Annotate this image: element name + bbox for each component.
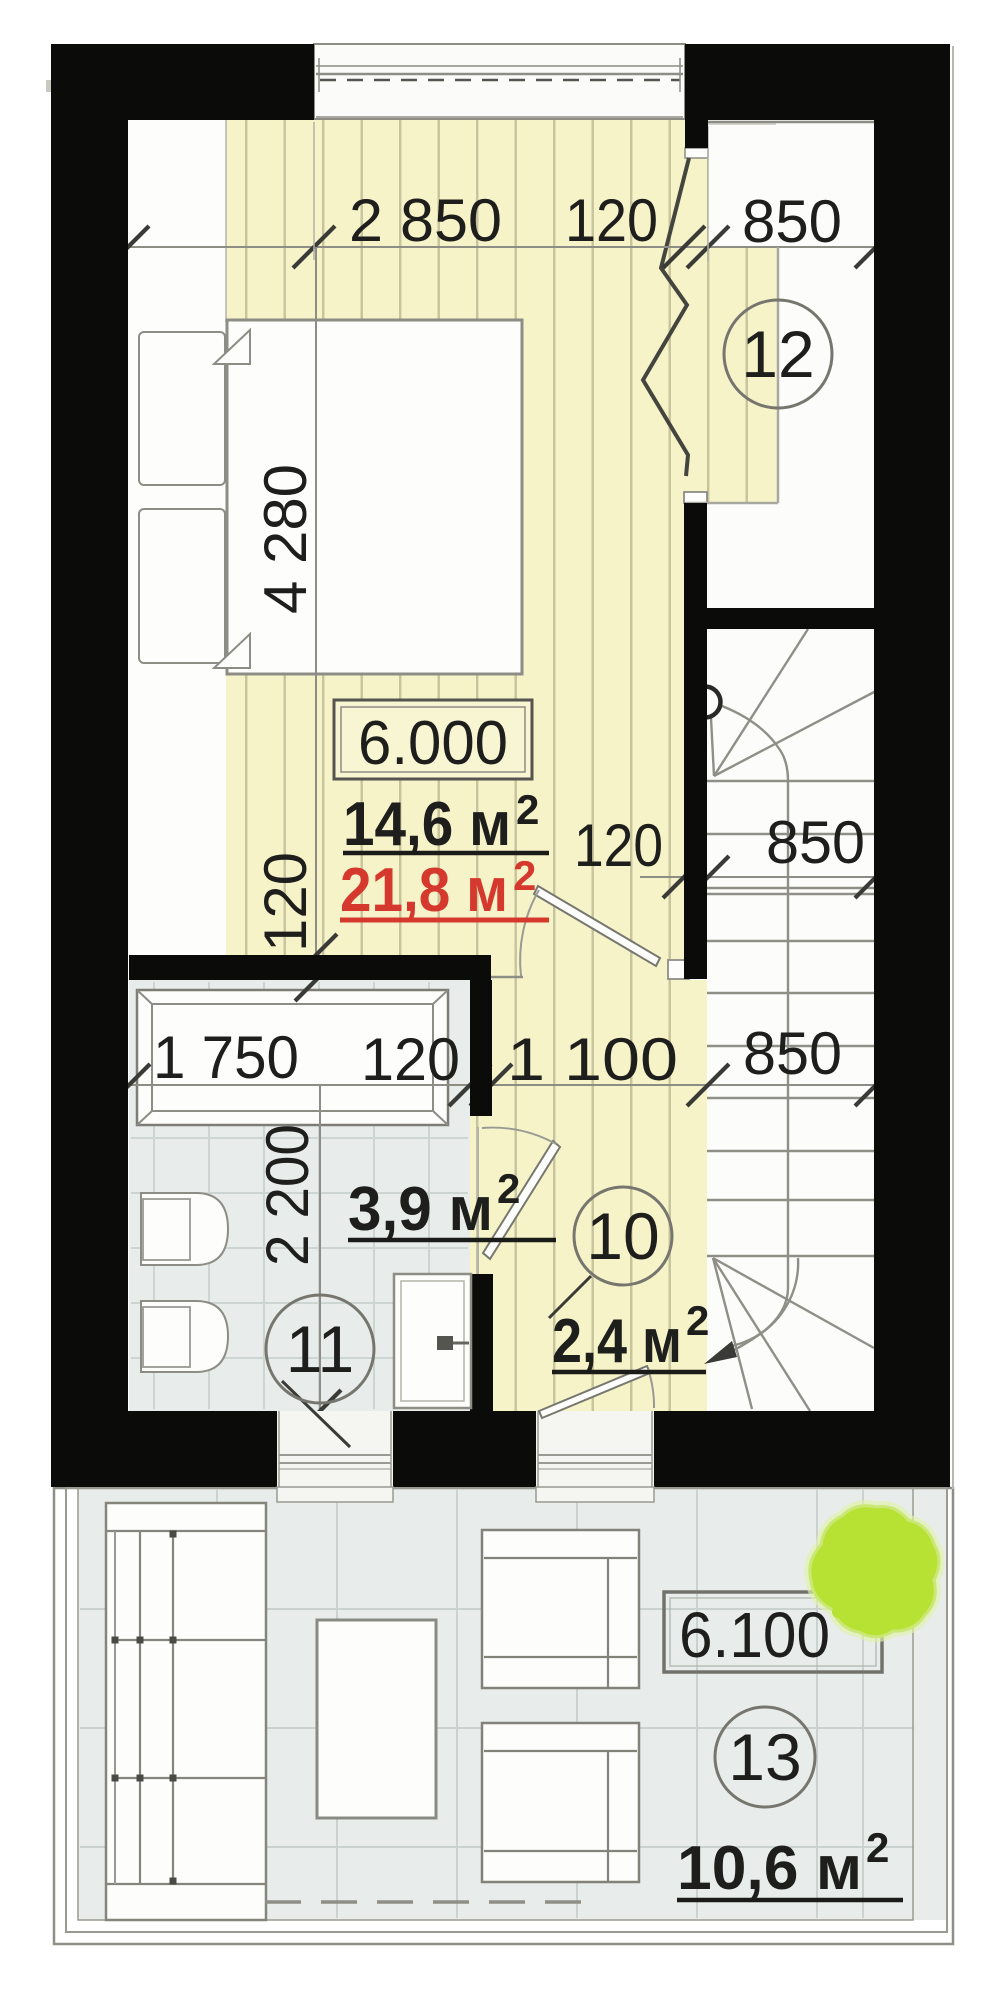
svg-text:850: 850 [742,188,842,255]
svg-text:14,6 м: 14,6 м [343,790,511,859]
svg-text:120: 120 [565,187,658,254]
svg-text:10,6 м: 10,6 м [677,1834,862,1903]
svg-text:120: 120 [361,1026,460,1093]
svg-text:2: 2 [866,1824,889,1871]
svg-text:850: 850 [743,1020,842,1087]
svg-text:4 280: 4 280 [252,464,319,614]
svg-text:13: 13 [728,1720,801,1794]
svg-text:21,8 м: 21,8 м [340,856,508,925]
svg-text:1 750: 1 750 [153,1024,299,1091]
svg-text:6.100: 6.100 [679,1599,830,1671]
svg-text:10: 10 [586,1199,659,1273]
svg-text:1 100: 1 100 [507,1026,678,1093]
svg-text:12: 12 [741,317,814,391]
svg-text:2 850: 2 850 [349,187,502,254]
svg-text:120: 120 [252,852,319,952]
svg-text:6.000: 6.000 [358,709,508,778]
svg-text:3,9 м: 3,9 м [348,1175,493,1244]
svg-text:850: 850 [766,809,865,876]
svg-text:2 200: 2 200 [254,1124,321,1266]
svg-text:120: 120 [574,812,663,879]
svg-text:11: 11 [286,1312,355,1386]
svg-text:2: 2 [497,1165,520,1212]
svg-text:2: 2 [686,1297,709,1344]
svg-text:2: 2 [513,852,536,899]
svg-text:2: 2 [516,786,539,833]
svg-text:2,4 м: 2,4 м [552,1307,682,1376]
